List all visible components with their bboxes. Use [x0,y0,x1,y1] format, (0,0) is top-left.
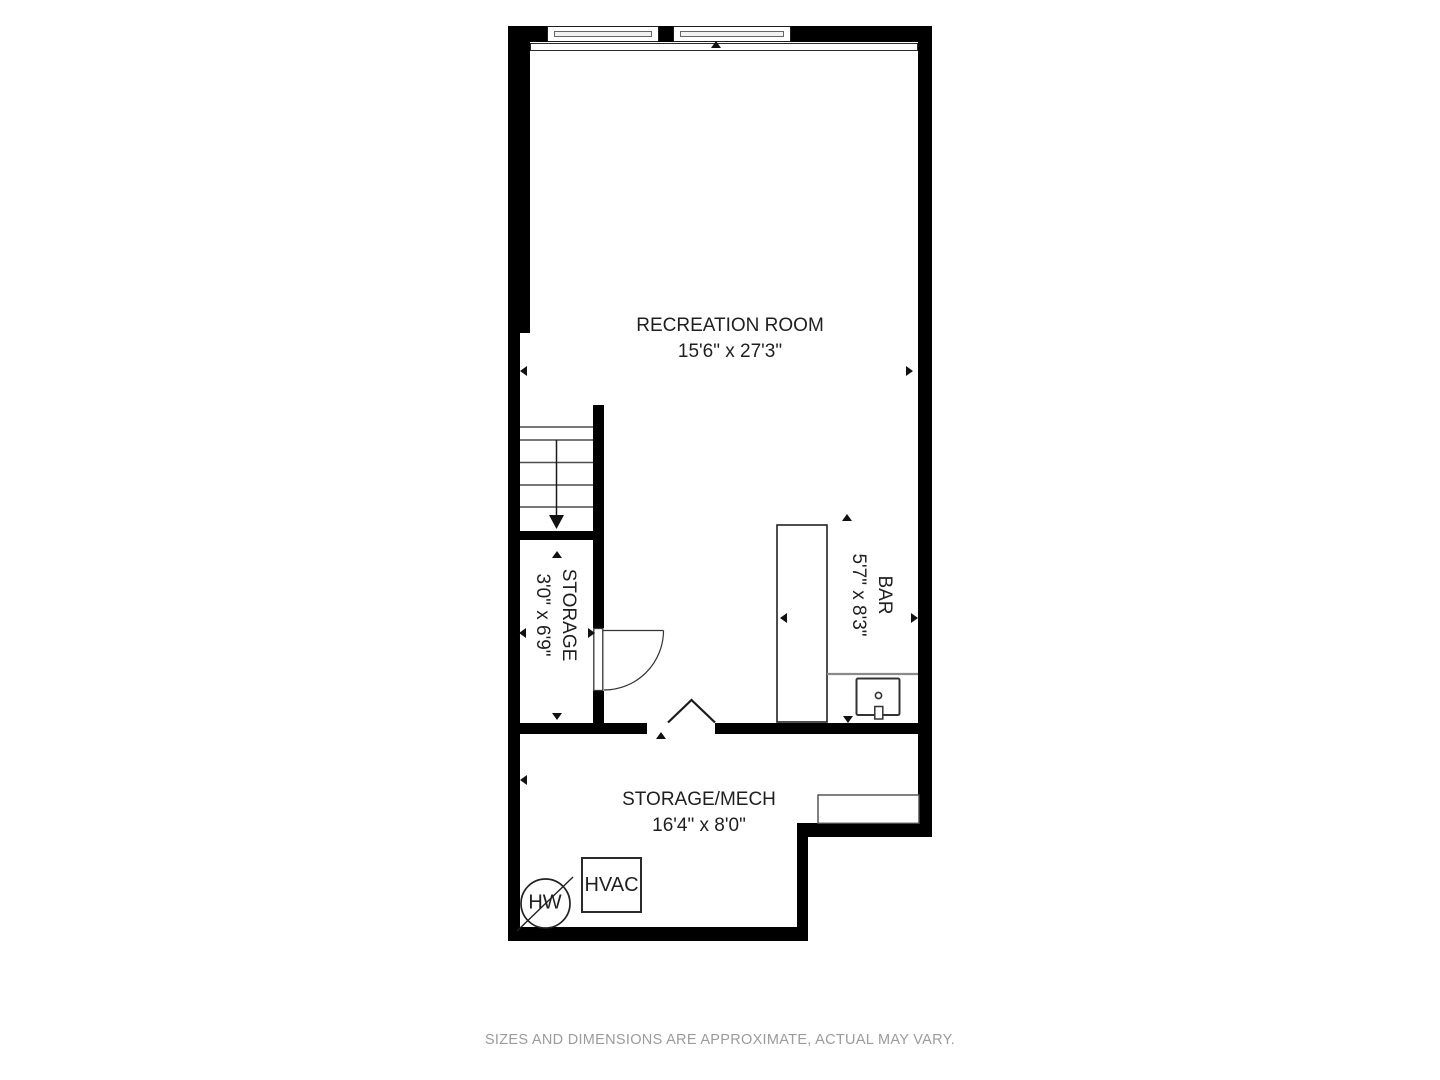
storage-door [594,629,664,691]
extent-arrow-up-icon [552,551,562,558]
room-label-recreation: RECREATION ROOM 15'6" x 27'3" [636,313,824,365]
floor-plan-canvas: RECREATION ROOM 15'6" x 27'3" STORAGE 3'… [0,0,1440,1080]
extent-arrow-right-icon [588,628,595,638]
room-dims: 15'6" x 27'3" [636,339,824,365]
disclaimer-text: SIZES AND DIMENSIONS ARE APPROXIMATE, AC… [0,1032,1440,1048]
extent-arrow-up-icon [656,732,666,739]
bar-counter-rect [777,525,827,722]
extent-arrow-down-icon [843,716,853,723]
room-label-bar: BAR 5'7" x 8'3" [845,553,897,636]
room-name: BAR [871,553,897,636]
sink-drain-icon [875,692,881,698]
extent-arrow-up-icon [711,41,721,48]
plan-graphics [0,0,1440,1080]
water-heater-label: HW [528,892,561,915]
stairs [520,427,593,529]
room-dims: 5'7" x 8'3" [845,553,871,636]
door-swing-arc [604,631,664,691]
bifold-door-icon [668,700,715,723]
room-name: RECREATION ROOM [636,313,824,339]
room-dims: 3'0" x 6'9" [529,569,555,662]
room-label-storage: STORAGE 3'0" x 6'9" [529,569,581,662]
hvac-label: HVAC [584,874,638,897]
extent-arrow-left-icon [520,775,527,785]
extent-arrow-down-icon [552,713,562,720]
room-name: STORAGE/MECH [622,787,776,813]
room-dims: 16'4" x 8'0" [622,813,776,839]
extent-arrow-left-icon [520,366,527,376]
extent-arrow-left-icon [519,628,526,638]
hvac-unit: HVAC [581,857,642,913]
room-label-storage-mech: STORAGE/MECH 16'4" x 8'0" [622,787,776,839]
sink-faucet-icon [875,707,883,720]
shelf-rect [818,795,919,823]
extent-arrow-right-icon [906,366,913,376]
extent-arrow-right-icon [911,613,918,623]
door-leaf [594,629,603,691]
extent-arrow-left-icon [780,613,787,623]
room-name: STORAGE [555,569,581,662]
stair-down-arrow-icon [549,515,564,529]
extent-arrow-up-icon [842,514,852,521]
